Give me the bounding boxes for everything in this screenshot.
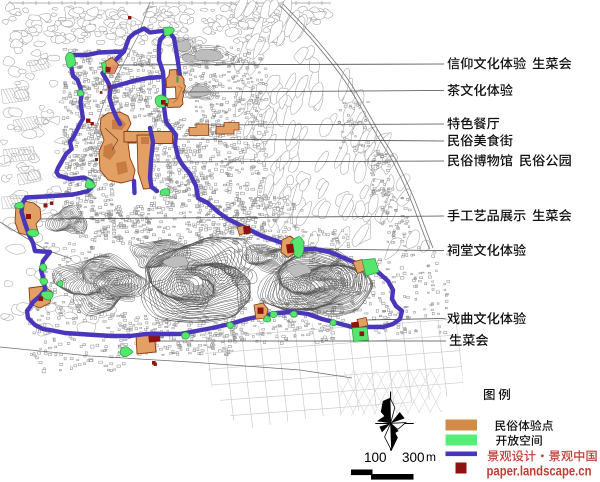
svg-text:m: m bbox=[426, 450, 436, 464]
svg-text:100: 100 bbox=[364, 450, 387, 465]
svg-text:300: 300 bbox=[402, 450, 425, 465]
svg-text:paper.landscape.cn: paper.landscape.cn bbox=[487, 464, 592, 479]
